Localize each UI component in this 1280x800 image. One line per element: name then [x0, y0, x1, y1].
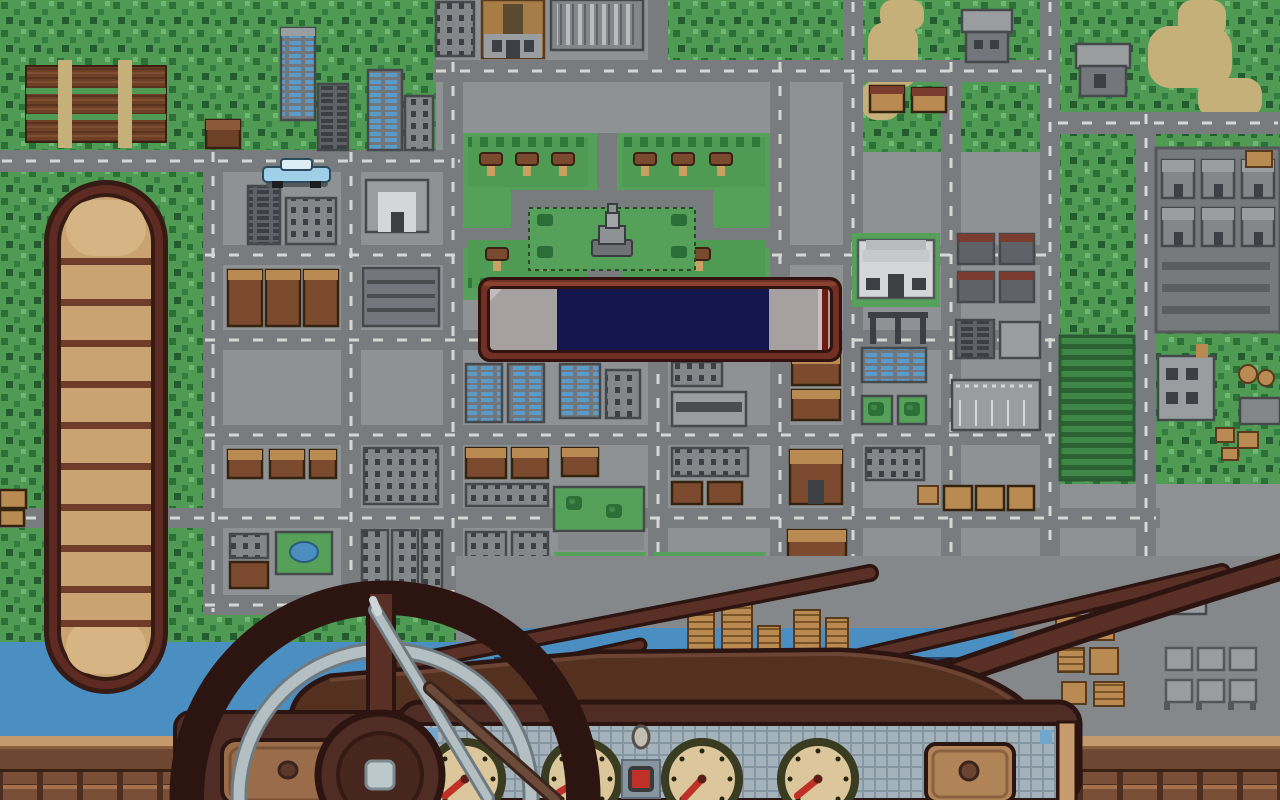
farm-shed — [206, 120, 240, 148]
barn-2 — [1076, 44, 1130, 96]
crop-field — [1060, 336, 1134, 480]
dialog-bar — [557, 289, 769, 350]
dash-red-button[interactable] — [630, 768, 652, 790]
pond-park — [276, 532, 332, 574]
civic-buildings — [436, 0, 643, 58]
game-canvas[interactable] — [0, 0, 1280, 800]
cowl-door-knob[interactable] — [279, 762, 297, 778]
statue-square — [529, 204, 695, 270]
wheel-hub — [318, 713, 442, 800]
industrial-yard — [1156, 148, 1280, 332]
dialog-box[interactable] — [478, 277, 842, 362]
parking-lot — [952, 380, 1040, 430]
glove-box-knob[interactable] — [960, 762, 978, 780]
airship-pod — [44, 180, 168, 694]
dash-knob[interactable] — [633, 726, 649, 748]
columned-building — [551, 0, 643, 50]
barn-house — [790, 450, 842, 504]
game-screen[interactable] — [0, 0, 1280, 800]
grand-building — [366, 180, 428, 232]
dock-racks — [1164, 648, 1256, 710]
white-mansion — [852, 233, 940, 307]
city-hall — [482, 0, 544, 58]
glove-box-door[interactable] — [926, 744, 1014, 800]
dialog-marker — [822, 289, 828, 350]
barn-1 — [962, 10, 1012, 62]
row-houses — [228, 270, 338, 326]
